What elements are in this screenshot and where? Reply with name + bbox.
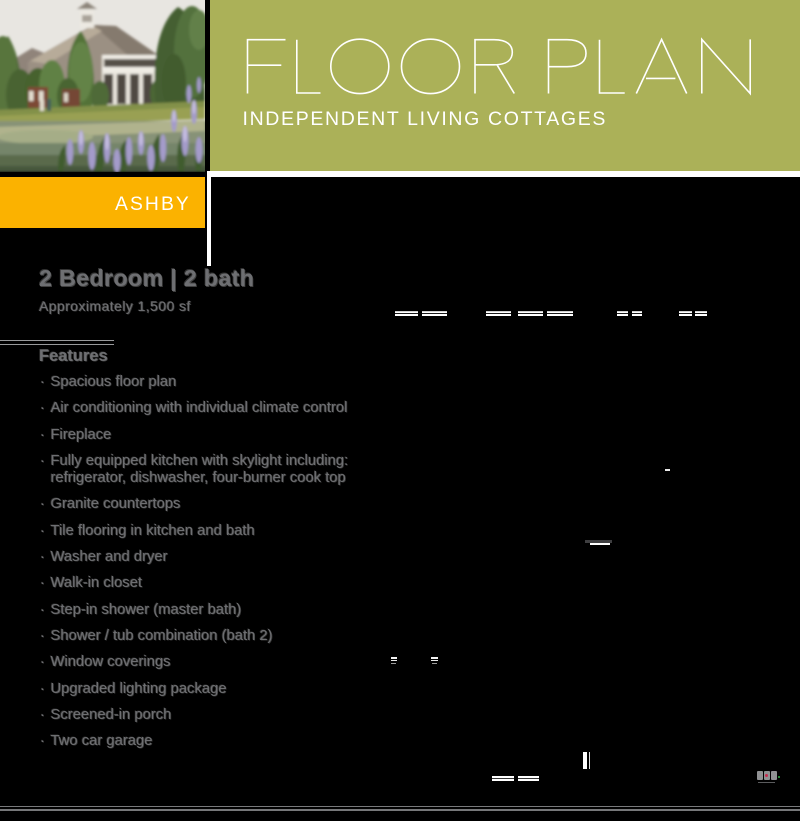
- svg-text:ASHBY: ASHBY: [115, 194, 191, 215]
- svg-text:INDEPENDENT LIVING COTTAGES: INDEPENDENT LIVING COTTAGES: [243, 108, 608, 130]
